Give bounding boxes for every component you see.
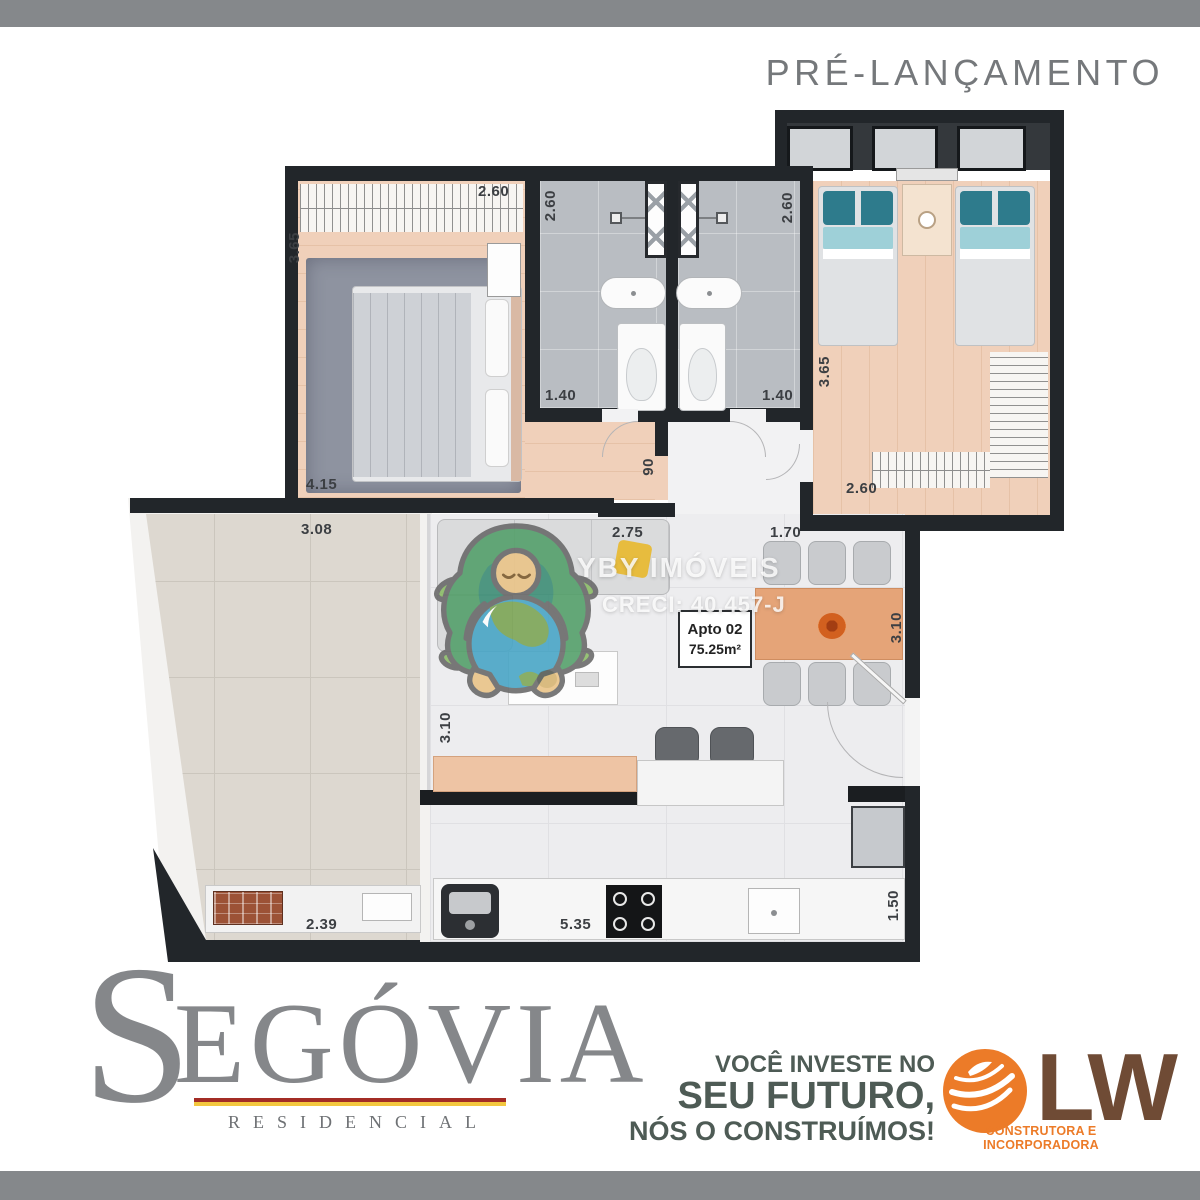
dining-chair bbox=[808, 541, 846, 585]
lw-globe-icon bbox=[940, 1046, 1030, 1136]
door-opening bbox=[800, 430, 813, 482]
dim-label: 90 bbox=[641, 458, 656, 476]
island-counter bbox=[637, 760, 784, 806]
dim-label: 2.60 bbox=[543, 190, 558, 221]
burner bbox=[641, 892, 655, 906]
segovia-wordmark: EGÓVIA bbox=[174, 986, 649, 1102]
shower-arm bbox=[622, 217, 645, 219]
slogan-line: NÓS O CONSTRUÍMOS! bbox=[620, 1117, 935, 1145]
refrigerator bbox=[441, 884, 499, 938]
wall-segment bbox=[775, 110, 787, 168]
terrace bbox=[118, 488, 440, 966]
shower-stall bbox=[678, 181, 699, 258]
unit-label-box: Apto 02 75.25m² bbox=[678, 610, 752, 668]
dining-chair bbox=[853, 541, 891, 585]
laundry-counter-edge bbox=[848, 786, 905, 802]
slogan-line: VOCÊ INVESTE NO bbox=[620, 1052, 935, 1077]
dim-label: 2.60 bbox=[846, 481, 877, 496]
slogan-line: SEU FUTURO, bbox=[620, 1077, 935, 1117]
dim-label: 4.15 bbox=[306, 477, 337, 492]
lw-subtitle: CONSTRUTORA E INCORPORADORA bbox=[938, 1124, 1144, 1152]
segovia-subtitle: RESIDENCIAL bbox=[228, 1112, 489, 1133]
kitchen-bench bbox=[433, 756, 637, 792]
wall-segment bbox=[1050, 110, 1064, 531]
dining-chair bbox=[808, 662, 846, 706]
bedroom2-nightstand bbox=[902, 184, 952, 256]
dining-chair bbox=[763, 662, 801, 706]
segovia-logo: S EGÓVIA RESIDENCIAL bbox=[82, 972, 562, 1162]
wall-segment bbox=[775, 110, 1064, 123]
pre-launch-headline: PRÉ-LANÇAMENTO bbox=[766, 52, 1164, 94]
dim-label: 1.50 bbox=[886, 890, 901, 921]
master-bed bbox=[352, 286, 522, 482]
dim-label: 3.08 bbox=[301, 522, 332, 537]
refrigerator-handle bbox=[465, 920, 475, 930]
door-opening bbox=[602, 409, 638, 422]
bedroom2-window bbox=[896, 168, 958, 181]
burner bbox=[613, 892, 627, 906]
dim-label: 3.10 bbox=[438, 712, 453, 743]
shower-head bbox=[610, 212, 622, 224]
bed-sheet-fold bbox=[823, 249, 893, 259]
bathroom-sink bbox=[676, 277, 742, 309]
bed-blanket bbox=[353, 293, 471, 477]
shower-stall bbox=[645, 181, 667, 258]
poster-canvas: PRÉ-LANÇAMENTO bbox=[0, 0, 1200, 1200]
dim-label: 3.10 bbox=[889, 612, 904, 643]
kitchen-counter bbox=[433, 878, 905, 940]
bathroom-sink bbox=[600, 277, 666, 309]
dim-label: 2.60 bbox=[780, 192, 795, 223]
wall-segment bbox=[540, 408, 813, 422]
dim-label: 2.75 bbox=[612, 525, 643, 540]
washer bbox=[851, 806, 905, 868]
flower-centerpiece bbox=[818, 613, 846, 639]
ac-unit bbox=[957, 126, 1026, 171]
top-border-bar bbox=[0, 0, 1200, 27]
shower-head bbox=[716, 212, 728, 224]
wall-segment bbox=[800, 515, 1064, 531]
kitchen-sink bbox=[748, 888, 800, 934]
dim-label: 1.40 bbox=[762, 388, 793, 403]
wall-segment bbox=[130, 498, 614, 513]
dim-label: 2.39 bbox=[306, 917, 337, 932]
unit-name: Apto 02 bbox=[687, 621, 742, 638]
faucet bbox=[771, 910, 777, 916]
door-opening bbox=[730, 409, 766, 422]
bed-sheet-fold bbox=[960, 249, 1030, 259]
master-dresser bbox=[487, 243, 521, 297]
bed-pillow bbox=[485, 299, 509, 377]
ac-unit bbox=[787, 126, 853, 171]
underline-gold bbox=[194, 1102, 506, 1106]
entry-door-opening bbox=[905, 698, 920, 786]
dim-label: 5.35 bbox=[560, 917, 591, 932]
bed-headboard bbox=[511, 287, 521, 481]
bench-front-panel bbox=[420, 790, 650, 805]
bed-blanket bbox=[823, 227, 893, 249]
toilet bbox=[617, 323, 666, 411]
dim-label: 3.65 bbox=[817, 356, 832, 387]
watermark-creci: CRECI: 40.457-J bbox=[602, 592, 786, 618]
burner bbox=[613, 917, 627, 931]
wall-segment bbox=[655, 408, 668, 456]
dim-label: 1.70 bbox=[770, 525, 801, 540]
wall-segment bbox=[415, 942, 920, 962]
bedroom2-wardrobe bbox=[872, 452, 990, 488]
wall-segment bbox=[598, 503, 675, 517]
builder-slogan: VOCÊ INVESTE NO SEU FUTURO, NÓS O CONSTR… bbox=[620, 1052, 935, 1145]
bedroom2-wardrobe bbox=[990, 352, 1048, 478]
terrace-sink bbox=[362, 893, 412, 921]
cooktop bbox=[606, 885, 662, 938]
ac-unit bbox=[872, 126, 938, 171]
burner bbox=[641, 917, 655, 931]
bed-blanket bbox=[960, 227, 1030, 249]
toilet bbox=[679, 323, 726, 411]
dim-label: 3.65 bbox=[287, 232, 302, 263]
lw-wordmark: LW bbox=[1036, 1040, 1176, 1136]
bed-pillows bbox=[960, 191, 1030, 225]
twin-bed bbox=[818, 186, 898, 346]
unit-area: 75.25m² bbox=[689, 641, 741, 657]
lamp bbox=[918, 211, 936, 229]
watermark-name: YBY IMÓVEIS bbox=[577, 552, 781, 584]
wall-segment bbox=[285, 166, 812, 181]
wall-segment bbox=[525, 166, 540, 422]
dim-label: 2.60 bbox=[478, 184, 509, 199]
twin-bed bbox=[955, 186, 1035, 346]
wall-segment bbox=[285, 166, 298, 511]
dim-label: 1.40 bbox=[545, 388, 576, 403]
refrigerator-top bbox=[449, 892, 491, 914]
bed-pillows bbox=[823, 191, 893, 225]
bed-pillow bbox=[485, 389, 509, 467]
segovia-underline bbox=[194, 1098, 506, 1106]
grill bbox=[213, 891, 283, 925]
yby-earth-mother-logo-icon bbox=[430, 512, 602, 712]
shower-arm bbox=[699, 217, 716, 219]
bottom-border-bar bbox=[0, 1171, 1200, 1200]
